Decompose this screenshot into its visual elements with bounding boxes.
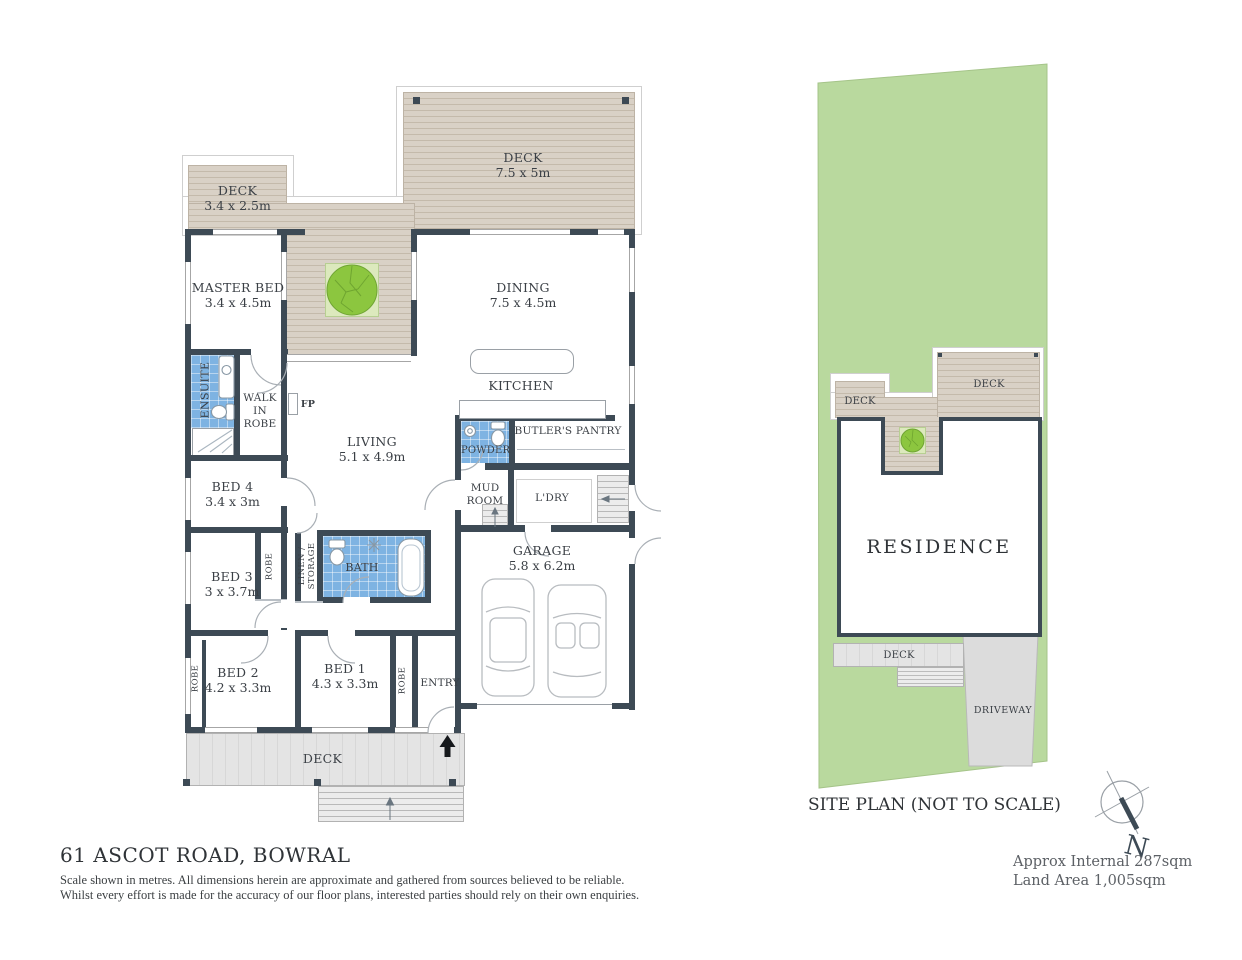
disclaimer: Scale shown in metres. All dimensions he…	[60, 873, 639, 903]
deck-post	[314, 779, 321, 786]
window	[629, 248, 635, 292]
site-tree-bed	[899, 427, 926, 454]
room-dims: 7.5 x 5m	[445, 165, 601, 180]
car-1-windshield	[486, 607, 530, 612]
area-figures: Approx Internal 287sqm Land Area 1,005sq…	[1013, 853, 1192, 891]
car-2-seat	[556, 623, 575, 648]
closet-line	[295, 601, 323, 603]
bed1-label: BED 1 4.3 x 3.3m	[285, 661, 405, 691]
site-stairs	[897, 667, 964, 687]
robe-bed1-label: ROBE	[398, 659, 409, 703]
robe-bed3-label: ROBE	[265, 545, 276, 589]
laundry-label: L'DRY	[522, 492, 582, 505]
deck-top-right-label: DECK 7.5 x 5m	[445, 150, 601, 180]
site-driveway-label: DRIVEWAY	[967, 704, 1039, 717]
floorplan-page: DECK 3.4 x 2.5m DECK 7.5 x 5m MASTER BED…	[0, 0, 1242, 960]
door-opening	[428, 727, 454, 733]
wall	[425, 530, 431, 603]
compass-circle	[1101, 781, 1143, 823]
car-1	[482, 579, 534, 696]
room-name: BED 4	[175, 479, 290, 494]
door-opening	[455, 480, 461, 510]
deck-top-left-label: DECK 3.4 x 2.5m	[165, 183, 310, 213]
site-residence-label: RESIDENCE	[848, 536, 1030, 558]
site-plan-caption: SITE PLAN (NOT TO SCALE)	[808, 795, 1061, 815]
garage-door	[477, 704, 612, 708]
room-name: KITCHEN	[455, 378, 587, 393]
bath-label: BATH	[332, 561, 392, 574]
linen-storage-label: LINEN / STORAGE	[297, 536, 317, 596]
glass-sliding-door	[287, 354, 411, 362]
compass-axis	[1095, 787, 1149, 817]
approx-internal-area: Approx Internal 287sqm	[1013, 853, 1192, 872]
room-name: DECK	[270, 751, 375, 766]
compass-icon: N	[1095, 771, 1152, 865]
car-2-seat	[580, 623, 599, 648]
deck-post	[622, 97, 629, 104]
door-opening	[343, 597, 370, 603]
site-deck-bottom-label: DECK	[868, 649, 930, 662]
stairs-laundry	[597, 475, 629, 523]
window	[205, 727, 257, 733]
room-dims: 5.8 x 6.2m	[452, 558, 632, 573]
window	[213, 229, 277, 235]
room-dims: 4.3 x 3.3m	[285, 676, 405, 691]
window	[411, 252, 417, 300]
robe-bed2-label: ROBE	[191, 657, 202, 701]
land-area: Land Area 1,005sqm	[1013, 872, 1192, 891]
room-name: DECK	[165, 183, 310, 198]
site-deck-right-label: DECK	[958, 378, 1020, 391]
door-opening	[629, 485, 635, 511]
window	[598, 229, 624, 235]
car-icons	[482, 579, 606, 697]
disclaimer-line2: Whilst every effort is made for the accu…	[60, 888, 639, 903]
kitchen-island	[470, 349, 574, 374]
deck-post	[1034, 353, 1038, 357]
door-opening	[461, 463, 485, 470]
master-bed-label: MASTER BED 3.4 x 4.5m	[168, 280, 308, 310]
door-opening	[525, 525, 551, 532]
wall	[185, 527, 288, 533]
car-1-rear	[486, 666, 530, 671]
room-name: DINING	[445, 280, 601, 295]
wall	[317, 530, 431, 536]
deck-bottom-label: DECK	[270, 751, 375, 766]
powder-label: POWDER	[461, 444, 509, 457]
door-opening	[251, 349, 281, 355]
wall	[185, 455, 288, 461]
wall	[185, 630, 461, 636]
mud-room-label: MUD ROOM	[462, 482, 508, 508]
deck-post	[413, 97, 420, 104]
door-opening	[268, 630, 295, 636]
window	[312, 727, 368, 733]
wall	[461, 703, 477, 709]
dining-label: DINING 7.5 x 4.5m	[445, 280, 601, 310]
external-stairs	[318, 786, 464, 822]
deck-post	[938, 353, 942, 357]
window	[629, 366, 635, 404]
room-name: LIVING	[302, 434, 442, 449]
disclaimer-line1: Scale shown in metres. All dimensions he…	[60, 873, 639, 888]
door-opening	[281, 600, 287, 628]
car-2-windshield	[553, 614, 601, 619]
car-1-roof	[490, 618, 526, 662]
car-2	[548, 585, 606, 697]
driveway-surface	[963, 634, 1038, 766]
compass-axis	[1107, 771, 1138, 834]
room-name: MASTER BED	[168, 280, 308, 295]
walk-in-robe-label: WALK IN ROBE	[237, 392, 283, 431]
room-name: DECK	[445, 150, 601, 165]
room-dims: 3.4 x 3m	[175, 494, 290, 509]
wall	[508, 470, 514, 532]
room-name: BED 1	[285, 661, 405, 676]
room-dims: 3.4 x 2.5m	[165, 198, 310, 213]
entry-label: ENTRY	[416, 677, 464, 690]
door-opening	[328, 630, 355, 636]
kitchen-counter	[459, 400, 606, 419]
wall	[317, 533, 323, 603]
deck-post	[183, 779, 190, 786]
compass-needle	[1121, 798, 1137, 829]
room-name: GARAGE	[452, 543, 632, 558]
pantry-shelf	[517, 449, 625, 450]
site-deck-left-label: DECK	[837, 395, 883, 408]
ensuite-label: ENSUITE	[201, 343, 215, 438]
room-dims: 7.5 x 4.5m	[445, 295, 601, 310]
courtyard-tree-bed	[325, 263, 379, 317]
page-title: 61 ASCOT ROAD, BOWRAL	[60, 843, 351, 867]
car-2-rear	[553, 672, 601, 677]
window	[470, 229, 570, 235]
butlers-pantry-label: BUTLER'S PANTRY	[512, 425, 624, 438]
window	[395, 727, 429, 733]
room-dims: 3.4 x 4.5m	[168, 295, 308, 310]
garage-label: GARAGE 5.8 x 6.2m	[452, 543, 632, 573]
bed4-label: BED 4 3.4 x 3m	[175, 479, 290, 509]
wall	[629, 229, 635, 710]
living-label: LIVING 5.1 x 4.9m	[302, 434, 442, 464]
room-dims: 5.1 x 4.9m	[302, 449, 442, 464]
kitchen-label: KITCHEN	[455, 378, 587, 393]
deck-post	[449, 779, 456, 786]
fireplace-label: FP	[295, 398, 321, 411]
wall	[317, 597, 431, 603]
